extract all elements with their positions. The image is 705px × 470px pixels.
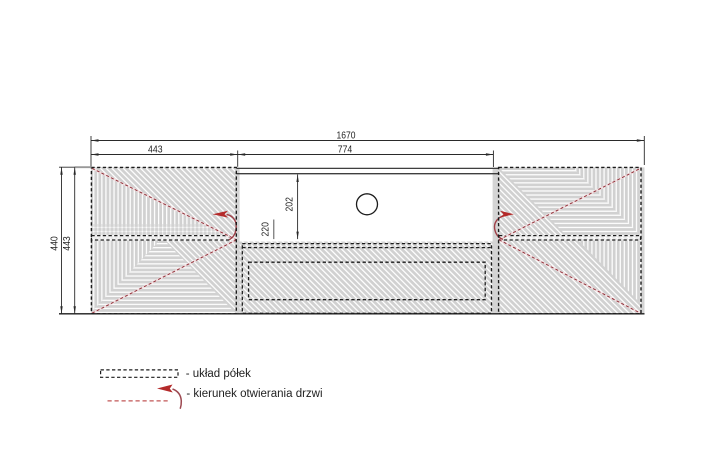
svg-text:1670: 1670 xyxy=(337,131,356,142)
svg-text:202: 202 xyxy=(284,197,295,212)
svg-text:- układ półek: - układ półek xyxy=(186,368,251,380)
svg-text:220: 220 xyxy=(260,222,271,237)
svg-text:774: 774 xyxy=(338,144,353,155)
svg-text:440: 440 xyxy=(49,236,60,251)
svg-text:443: 443 xyxy=(62,236,73,251)
svg-text:- kierunek otwierania drzwi: - kierunek otwierania drzwi xyxy=(186,388,322,400)
svg-text:443: 443 xyxy=(148,144,163,155)
